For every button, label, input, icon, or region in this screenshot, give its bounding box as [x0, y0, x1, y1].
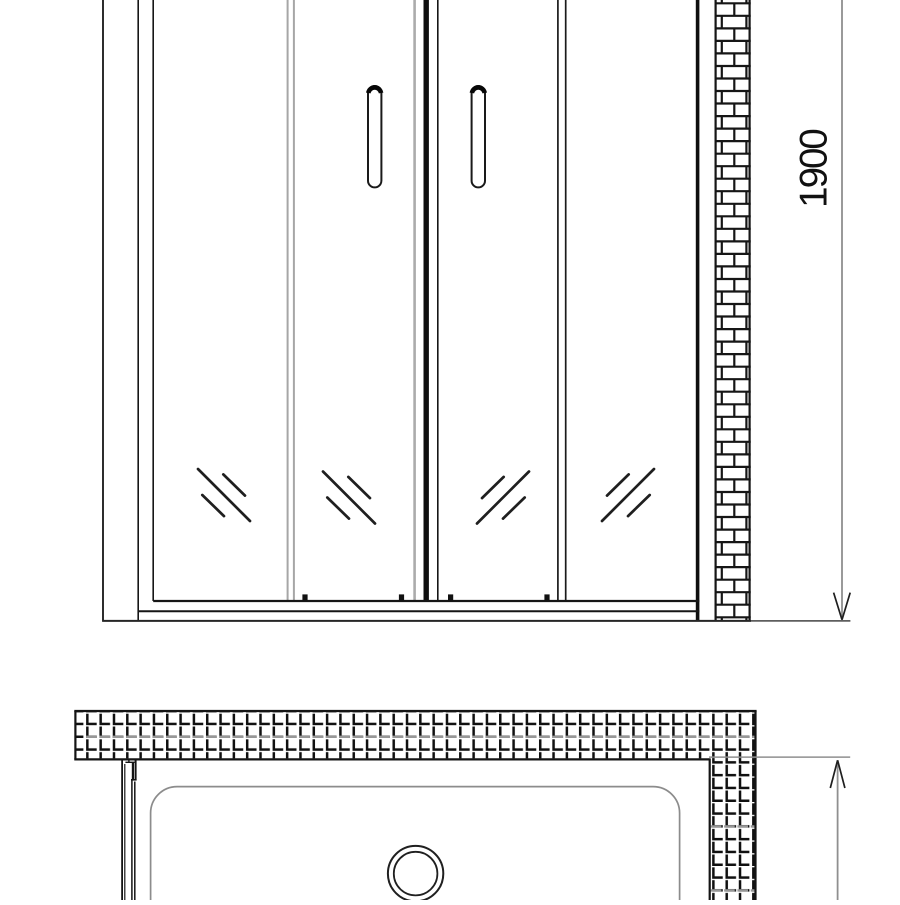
- svg-text:1900: 1900: [793, 130, 836, 208]
